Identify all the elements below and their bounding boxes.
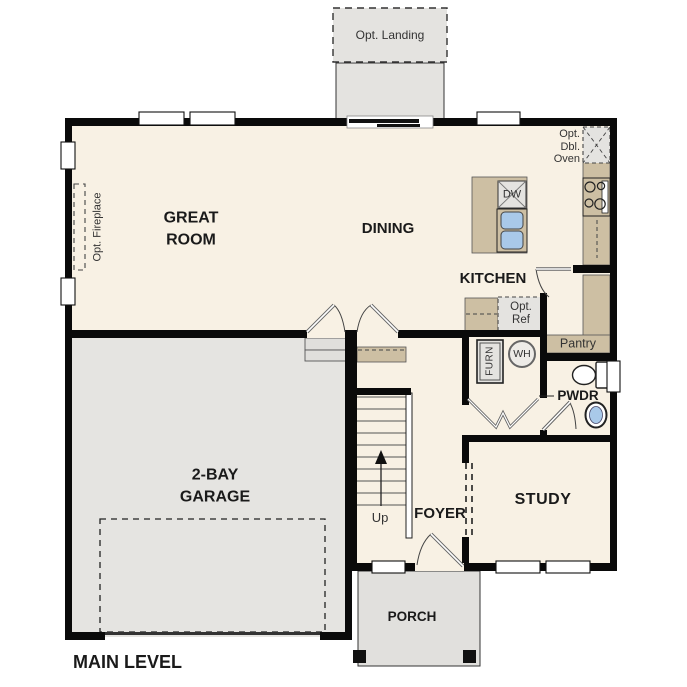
water-heater-icon	[509, 341, 535, 367]
porch-floor	[358, 571, 480, 666]
porch-post-right	[463, 650, 476, 663]
floor-fills	[65, 63, 617, 666]
opt-refrigerator-box	[498, 297, 544, 331]
garage-door-line	[105, 632, 320, 635]
garage-entry-steps	[305, 338, 347, 361]
garage-floor	[65, 334, 352, 637]
stair-handrail	[406, 393, 412, 538]
rear-landing	[336, 63, 444, 121]
range-cooktop-icon	[583, 178, 610, 216]
sliding-door	[347, 116, 433, 128]
dishwasher-symbol	[498, 181, 526, 208]
lavatory-sink-icon	[586, 403, 607, 428]
opt-landing-outline	[333, 8, 447, 62]
double-sink-icon	[497, 209, 527, 252]
porch-post-left	[353, 650, 366, 663]
opt-fireplace-box	[74, 184, 85, 270]
floor-plan-drawing	[0, 0, 687, 687]
pantry-shelf-bottom	[546, 335, 610, 353]
furnace-box	[477, 340, 503, 383]
closet-shelf	[357, 347, 406, 362]
floor-plan: Opt. Landing GREAT ROOM DINING KITCHEN O…	[0, 0, 687, 687]
